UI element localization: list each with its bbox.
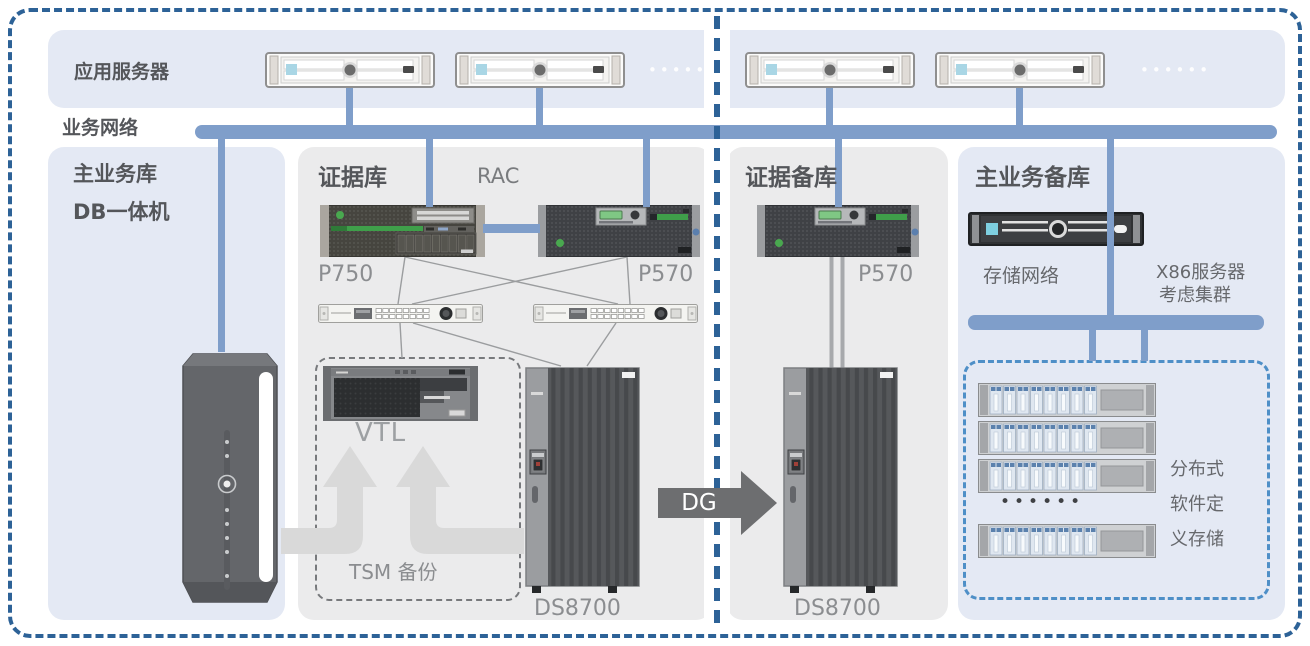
- business-network-label: 业务网络: [62, 113, 138, 140]
- ds8700-backup-label: DS8700: [794, 596, 881, 621]
- diagram-border: [8, 8, 1302, 638]
- primary-db-subtitle: DB一体机: [73, 196, 169, 226]
- rac-label: RAC: [477, 164, 519, 188]
- storage-network-label: 存储网络: [983, 261, 1059, 288]
- sds-label-line2: 软件定: [1170, 490, 1224, 516]
- dg-arrow-label: DG: [660, 490, 738, 516]
- sds-label-line3: 义存储: [1170, 525, 1224, 551]
- tsm-backup-label: TSM 备份: [349, 556, 438, 585]
- vtl-label: VTL: [355, 418, 406, 448]
- sds-label-line1: 分布式: [1170, 455, 1224, 481]
- app-servers-ellipsis: ••••••: [1140, 61, 1211, 79]
- primary-backup-title: 主业务备库: [975, 158, 1090, 192]
- storage-array-ellipsis: ••••••: [1000, 492, 1084, 512]
- primary-db-title: 主业务库: [73, 158, 157, 188]
- p570-label: P570: [638, 262, 693, 287]
- x86-note-line2: 考虑集群: [1159, 281, 1231, 307]
- evidence-backup-title: 证据备库: [745, 158, 837, 192]
- ds8700-label: DS8700: [534, 596, 621, 621]
- evidence-db-title: 证据库: [318, 158, 387, 192]
- p750-label: P750: [318, 262, 373, 287]
- app-servers-ellipsis: ••••••: [648, 61, 719, 79]
- architecture-diagram: 应用服务器 •••••• •••••• 业务网络 主业务库 DB一体机 证据库 …: [0, 0, 1310, 646]
- app-tier-label: 应用服务器: [74, 57, 169, 84]
- p570-backup-label: P570: [858, 262, 913, 287]
